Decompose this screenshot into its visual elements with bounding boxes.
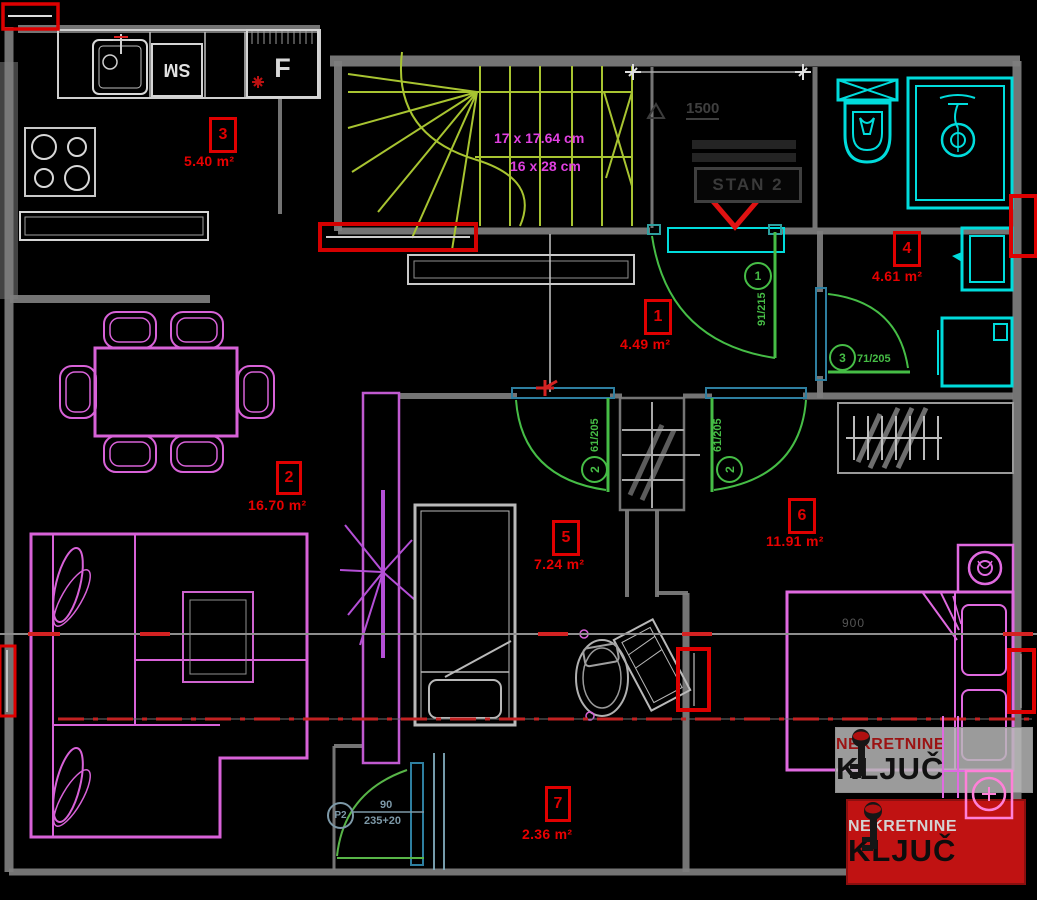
- door-3-size: 71/205: [857, 353, 891, 365]
- plant-icon: [340, 525, 415, 645]
- room-3-number: 3: [209, 117, 237, 153]
- door-2a-tag: 2: [581, 456, 608, 483]
- room-3-area: 5.40 m²: [184, 153, 234, 169]
- room-4-area: 4.61 m²: [872, 268, 922, 284]
- fridge-label: F: [247, 42, 318, 95]
- room-7-area: 2.36 m²: [522, 826, 572, 842]
- shower: [908, 78, 1012, 208]
- corner-sofa: [31, 534, 307, 837]
- door-1-size: 91/215: [756, 286, 768, 326]
- elevation-marker: [648, 104, 664, 118]
- hall-cabinet: [408, 255, 634, 284]
- illegible-text-line: [692, 140, 796, 149]
- balcony-door-height: 235+20: [364, 815, 401, 827]
- desk-chair: [576, 630, 628, 720]
- bed-pillow: [429, 680, 501, 718]
- door-2a-size: 61/205: [589, 410, 601, 452]
- room-7-number: 7: [545, 786, 571, 822]
- room-5-area: 7.24 m²: [534, 556, 584, 572]
- key-icon: [848, 728, 874, 780]
- entry-dim: 1500: [686, 100, 719, 120]
- section-lines: [0, 234, 1037, 719]
- entrance-arrow-icon: [711, 199, 759, 227]
- room-6-area: 11.91 m²: [766, 533, 824, 549]
- coffee-table: [183, 592, 253, 682]
- shelf-above-door: [668, 228, 784, 252]
- room-2-area: 16.70 m²: [248, 497, 306, 513]
- stairs-dim-1: 17 x 17.64 cm: [494, 130, 584, 146]
- nightstand-lamp: [958, 545, 1013, 592]
- wall-cross-marker: [536, 380, 554, 396]
- single-bed: [415, 505, 515, 725]
- room-1-number: 1: [644, 299, 672, 335]
- wardrobe-divider: [340, 393, 415, 763]
- floor-plan-canvas: 1 4.49 m² 2 16.70 m² 3 5.40 m² 4 4.61 m²…: [0, 0, 1037, 900]
- stairs-dim-2: 16 x 28 cm: [510, 158, 581, 174]
- shower-valve: [940, 95, 975, 104]
- shaft-radiator: [622, 402, 700, 508]
- illegible-text-line: [692, 153, 796, 162]
- unit-label-box: STAN 2: [694, 167, 802, 203]
- door-2b-tag: 2: [716, 456, 743, 483]
- toilet: [838, 80, 897, 162]
- watermark-logo-red: NEKRETNINE KLJUČ: [846, 799, 1026, 885]
- sink-faucet-arrow: [952, 252, 962, 262]
- room-4-number: 4: [893, 231, 921, 267]
- door-3-tag: 3: [829, 344, 856, 371]
- balcony-door-width: 90: [380, 799, 392, 811]
- room-5-number: 5: [552, 520, 580, 556]
- room-2-number: 2: [276, 461, 302, 495]
- worktop: [20, 212, 208, 240]
- radiator-cabinet: [838, 403, 1013, 473]
- room-6-number: 6: [788, 498, 816, 534]
- bed-dim: 900: [842, 616, 865, 630]
- bathroom-sink: [952, 228, 1012, 290]
- watermark-logo-gray: NEKRETNINE KLJUČ: [835, 727, 1033, 793]
- washing-machine: [938, 318, 1012, 386]
- door-3: [816, 288, 910, 380]
- balcony-door-tag: P2: [327, 802, 354, 829]
- dining-table: [60, 312, 274, 472]
- living-room-furniture: [31, 312, 415, 837]
- washing-machine-label: SM: [152, 44, 202, 96]
- door-2b-size: 61/205: [712, 410, 724, 452]
- room-1-area: 4.49 m²: [620, 336, 670, 352]
- bed-pillow: [962, 605, 1006, 675]
- stairs: [348, 52, 632, 250]
- key-icon: [860, 801, 886, 853]
